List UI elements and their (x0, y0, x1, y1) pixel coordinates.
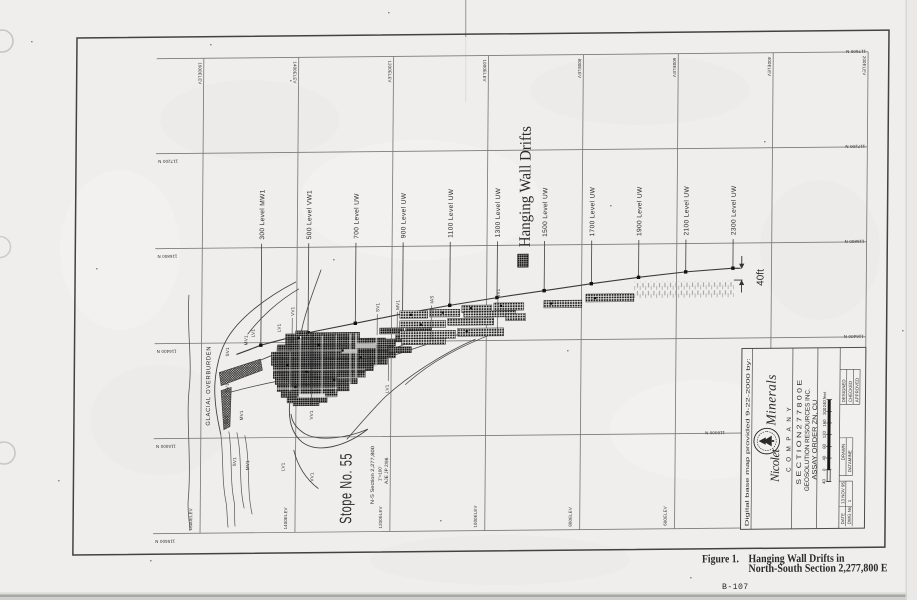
svg-text:LV1: LV1 (281, 462, 286, 471)
svg-text:S E C T I O N 2 7 7 8 0 0 E: S E C T I O N 2 7 7 8 0 0 E (796, 379, 804, 485)
svg-text:CHECKED: CHECKED (848, 381, 853, 403)
svg-text:1400ELEV: 1400ELEV (292, 61, 297, 83)
svg-text:800ELEV: 800ELEV (568, 507, 573, 527)
svg-text:MV1: MV1 (244, 335, 249, 345)
svg-text:115600 N: 115600 N (155, 539, 175, 544)
svg-text:Nicolet: Nicolet (768, 448, 782, 483)
svg-text:1200ELEV: 1200ELEV (378, 506, 383, 528)
svg-text:116400 N: 116400 N (844, 334, 864, 339)
svg-text:500 Level VW1: 500 Level VW1 (306, 190, 313, 239)
svg-text:DRAWN: DRAWN (841, 444, 846, 460)
svg-text:800ELEV: 800ELEV (577, 59, 582, 79)
svg-text:VV1: VV1 (309, 472, 314, 482)
svg-text:1900 Level UW: 1900 Level UW (636, 186, 643, 236)
svg-text:1300 Level UW: 1300 Level UW (495, 187, 502, 237)
svg-text:116800 N: 116800 N (157, 254, 177, 259)
svg-text:Hanging Wall Drifts: Hanging Wall Drifts (517, 126, 535, 247)
svg-text:Stope No. 55: Stope No. 55 (337, 453, 356, 524)
svg-text:13 NOV 95: 13 NOV 95 (840, 482, 845, 504)
svg-text:40: 40 (821, 478, 826, 483)
svg-text:Minerals: Minerals (763, 374, 778, 426)
svg-text:600ELEV: 600ELEV (663, 506, 668, 526)
svg-text:B-107: B-107 (722, 583, 749, 592)
svg-text:1”=100’: 1”=100’ (377, 466, 382, 481)
svg-text:160: 160 (822, 419, 827, 427)
svg-text:1400ELEV: 1400ELEV (283, 507, 288, 529)
svg-text:GLACIAL OVERBURDEN: GLACIAL OVERBURDEN (206, 346, 213, 426)
svg-text:AJE JP 2/96: AJE JP 2/96 (384, 457, 390, 484)
svg-text:116000 N: 116000 N (705, 430, 725, 435)
svg-text:700 Level UW: 700 Level UW (353, 193, 360, 239)
svg-text:116800 N: 116800 N (844, 239, 864, 244)
svg-text:240 feet: 240 feet (822, 391, 827, 407)
svg-text:North-South Section 2,277,800: North-South Section 2,277,800 E (748, 562, 887, 575)
svg-text:MV1: MV1 (395, 300, 400, 310)
svg-text:COMPANY: COMPANY (785, 402, 793, 472)
svg-text:116400 N: 116400 N (157, 349, 177, 354)
svg-text:120: 120 (822, 431, 827, 439)
svg-text:LV1: LV1 (277, 323, 282, 332)
svg-text:LV1: LV1 (385, 384, 390, 393)
svg-text:Figure 1.: Figure 1. (702, 553, 739, 565)
svg-text:APPROVED: APPROVED (854, 378, 859, 402)
svg-text:VV1: VV1 (290, 306, 295, 316)
svg-text:40: 40 (822, 455, 827, 460)
svg-text:SV1: SV1 (225, 383, 230, 393)
svg-text:116000 N: 116000 N (156, 444, 176, 449)
svg-text:117200 N: 117200 N (845, 144, 865, 149)
svg-text:DESIGNED: DESIGNED (841, 379, 846, 402)
svg-text:200ELEV: 200ELEV (862, 56, 867, 76)
svg-text:DWG No: DWG No (847, 506, 852, 524)
svg-text:DATAMINE: DATAMINE (847, 450, 852, 472)
svg-text:ASSAY ORDER ZN, CU: ASSAY ORDER ZN, CU (811, 399, 819, 480)
svg-text:2300 Level UW: 2300 Level UW (731, 185, 738, 235)
svg-text:300 Level MW1: 300 Level MW1 (259, 189, 266, 239)
svg-text:N-S Section 2,277,800: N-S Section 2,277,800 (370, 446, 376, 504)
svg-text:40ft: 40ft (755, 269, 766, 286)
svg-text:MV1: MV1 (239, 410, 244, 420)
svg-text:2100 Level UW: 2100 Level UW (683, 185, 690, 235)
svg-text:1700 Level UW: 1700 Level UW (589, 186, 596, 236)
svg-text:1500 Level UW: 1500 Level UW (542, 187, 549, 237)
svg-text:DATE: DATE (840, 513, 845, 525)
svg-text:SV1: SV1 (232, 457, 237, 467)
svg-text:1600ELEV: 1600ELEV (197, 62, 202, 84)
svg-text:400ELEV: 400ELEV (767, 57, 772, 77)
svg-text:VV1: VV1 (309, 410, 314, 420)
svg-text:LV1: LV1 (251, 329, 256, 338)
svg-text:MV1: MV1 (245, 460, 250, 470)
svg-text:1100 Level UW: 1100 Level UW (448, 188, 455, 238)
svg-text:SV1: SV1 (375, 303, 380, 313)
svg-text:SV1: SV1 (496, 288, 501, 298)
svg-text:117200 N: 117200 N (158, 159, 178, 164)
svg-text:80: 80 (822, 443, 827, 448)
svg-text:600ELEV: 600ELEV (672, 58, 677, 78)
svg-text:1200ELEV: 1200ELEV (387, 60, 392, 82)
svg-text:117600 N: 117600 N (846, 49, 866, 54)
svg-text:IAS: IAS (429, 295, 434, 303)
svg-text:900 Level UW: 900 Level UW (400, 192, 407, 238)
svg-text:SV1: SV1 (224, 415, 229, 425)
svg-text:1000ELEV: 1000ELEV (473, 505, 478, 527)
svg-text:SV1: SV1 (225, 347, 230, 357)
svg-text:1000ELEV: 1000ELEV (482, 60, 487, 82)
